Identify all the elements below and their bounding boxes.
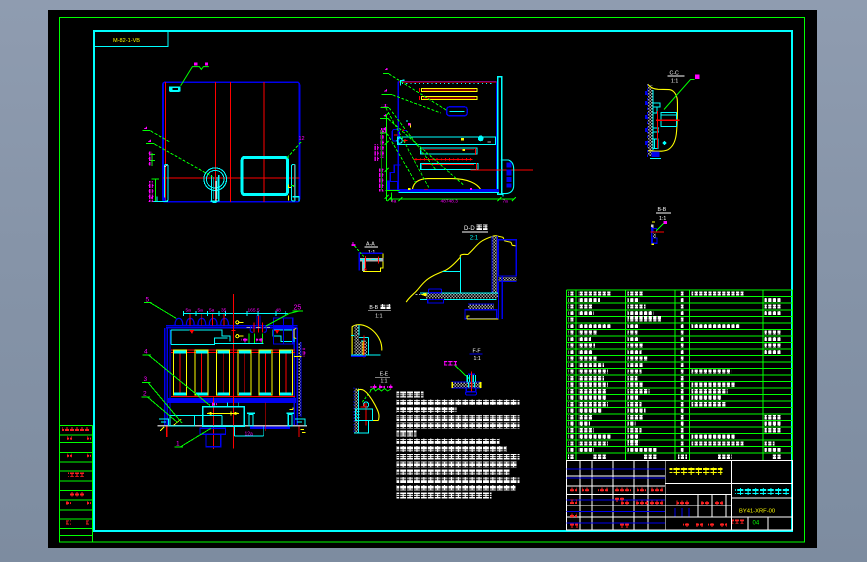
svg-text:2:1: 2:1 [470,235,479,241]
svg-text:48748.3: 48748.3 [441,199,459,205]
svg-text:4a: 4a [391,199,397,205]
svg-text:5a: 5a [198,308,204,314]
svg-text:E-E: E-E [380,372,389,378]
svg-text:M-82-1-VB: M-82-1-VB [113,38,140,44]
svg-text:7a: 7a [503,199,509,205]
svg-text:1:1: 1:1 [375,313,382,319]
svg-text:2: 2 [143,391,147,398]
svg-text:BY41-XRF-00: BY41-XRF-00 [739,509,775,515]
svg-text:3: 3 [144,376,148,383]
svg-text:B-B: B-B [369,305,378,311]
svg-text:1:1: 1:1 [671,79,678,85]
svg-text:04: 04 [753,521,760,527]
svg-text:35: 35 [221,308,227,314]
svg-text:1:1: 1:1 [474,356,481,362]
svg-text:48: 48 [276,308,282,314]
svg-text:5a: 5a [209,308,215,314]
svg-text:12: 12 [299,136,305,142]
svg-text:4: 4 [144,349,148,356]
svg-text:D-D: D-D [464,226,475,232]
svg-text:B-B: B-B [658,207,667,213]
svg-text:5a: 5a [186,308,192,314]
svg-text:1:1: 1:1 [381,378,388,384]
svg-text:12a: 12a [245,431,254,437]
svg-text:165.5: 165.5 [248,308,260,314]
svg-text:1:1: 1:1 [659,216,666,222]
